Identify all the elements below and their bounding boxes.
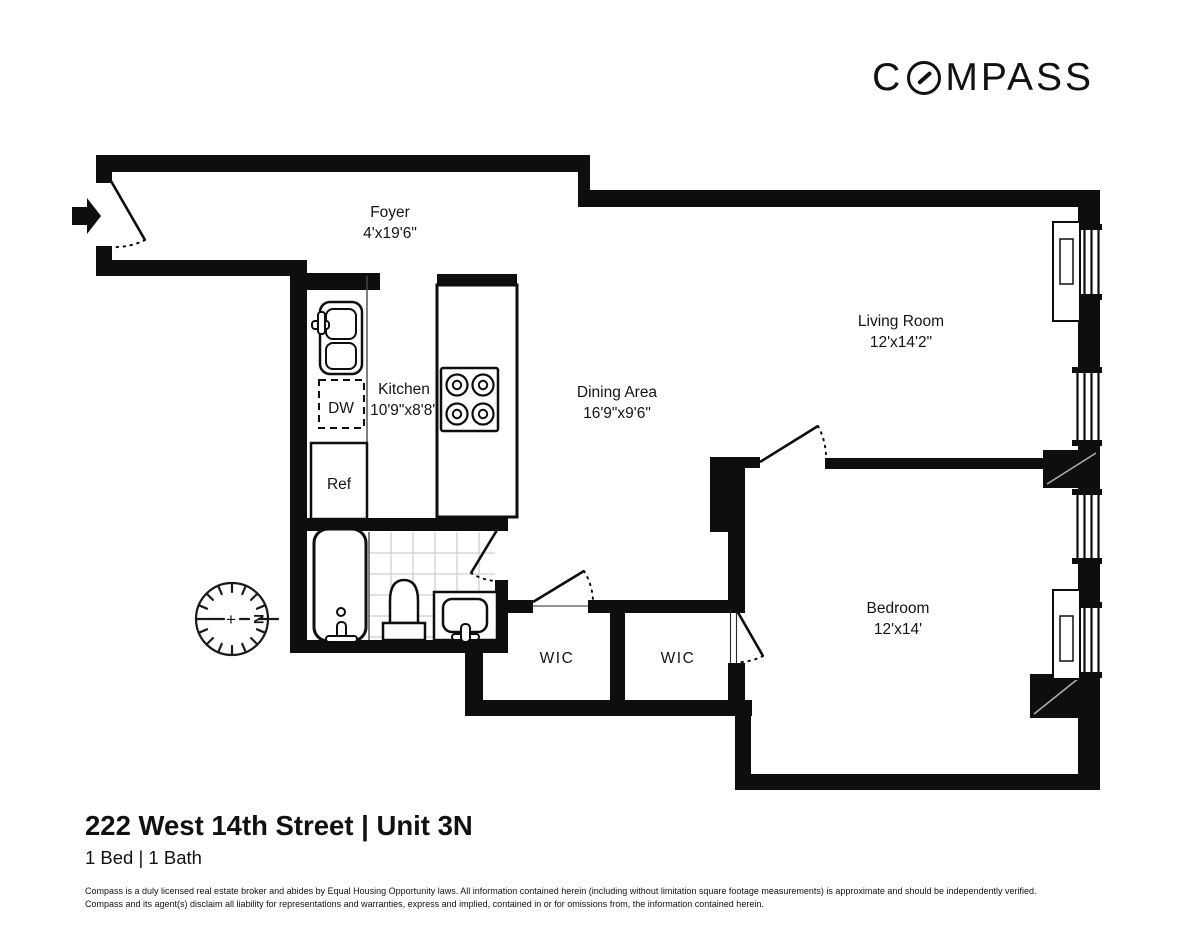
bed-bath-subtitle: 1 Bed | 1 Bath	[85, 847, 202, 869]
walls	[96, 155, 1100, 790]
svg-text:Living Room: Living Room	[858, 313, 944, 330]
svg-text:12'x14': 12'x14'	[874, 621, 922, 638]
svg-text:Foyer: Foyer	[370, 204, 410, 221]
radiator-bedroom	[1053, 590, 1080, 679]
floor-plan: DW Ref	[0, 0, 1200, 926]
compass-north-label: N	[251, 614, 267, 624]
living-bedroom-door	[760, 426, 826, 462]
svg-text:12'x14'2": 12'x14'2"	[870, 334, 932, 351]
room-label-foyer: Foyer 4'x19'6"	[363, 204, 417, 242]
bathroom-sink	[434, 592, 497, 642]
compass-plus: +	[226, 610, 236, 629]
dishwasher: DW	[319, 380, 364, 428]
floorplan-page: C MPASS	[0, 0, 1200, 926]
svg-text:16'9"x9'6": 16'9"x9'6"	[583, 405, 651, 422]
bathtub	[314, 529, 366, 642]
radiator-living	[1053, 222, 1080, 321]
room-label-dining-area: Dining Area 16'9"x9'6"	[577, 384, 658, 422]
room-label-kitchen: Kitchen 10'9"x8'8"	[370, 381, 438, 419]
window-living-lower	[1072, 367, 1102, 446]
compass-rose: + N	[196, 583, 278, 655]
disclaimer-line-1: Compass is a duly licensed real estate b…	[85, 885, 1037, 898]
svg-text:Kitchen: Kitchen	[378, 381, 430, 398]
svg-text:Ref: Ref	[327, 476, 352, 493]
wic-left-door	[533, 571, 593, 606]
svg-text:10'9"x8'8": 10'9"x8'8"	[370, 402, 438, 419]
svg-text:4'x19'6": 4'x19'6"	[363, 225, 417, 242]
refrigerator: Ref	[311, 443, 367, 519]
room-label-bedroom: Bedroom 12'x14'	[867, 600, 930, 638]
stove	[441, 368, 498, 431]
window-bedroom-upper	[1072, 489, 1102, 564]
disclaimer-line-2: Compass and its agent(s) disclaim all li…	[85, 898, 1037, 911]
room-label-wic-left: WIC	[540, 650, 575, 667]
disclaimer: Compass is a duly licensed real estate b…	[85, 885, 1037, 911]
toilet	[383, 580, 425, 640]
bathroom	[314, 529, 497, 642]
kitchen-sink	[312, 302, 362, 374]
svg-text:Dining Area: Dining Area	[577, 384, 658, 401]
entry-arrow-icon	[72, 198, 101, 234]
svg-text:Bedroom: Bedroom	[867, 600, 930, 617]
room-label-wic-right: WIC	[661, 650, 696, 667]
entry-door	[111, 181, 145, 247]
svg-text:DW: DW	[328, 400, 354, 417]
page-title: 222 West 14th Street | Unit 3N	[85, 810, 473, 842]
bedroom-door	[731, 609, 764, 663]
room-label-living-room: Living Room 12'x14'2"	[858, 313, 944, 351]
